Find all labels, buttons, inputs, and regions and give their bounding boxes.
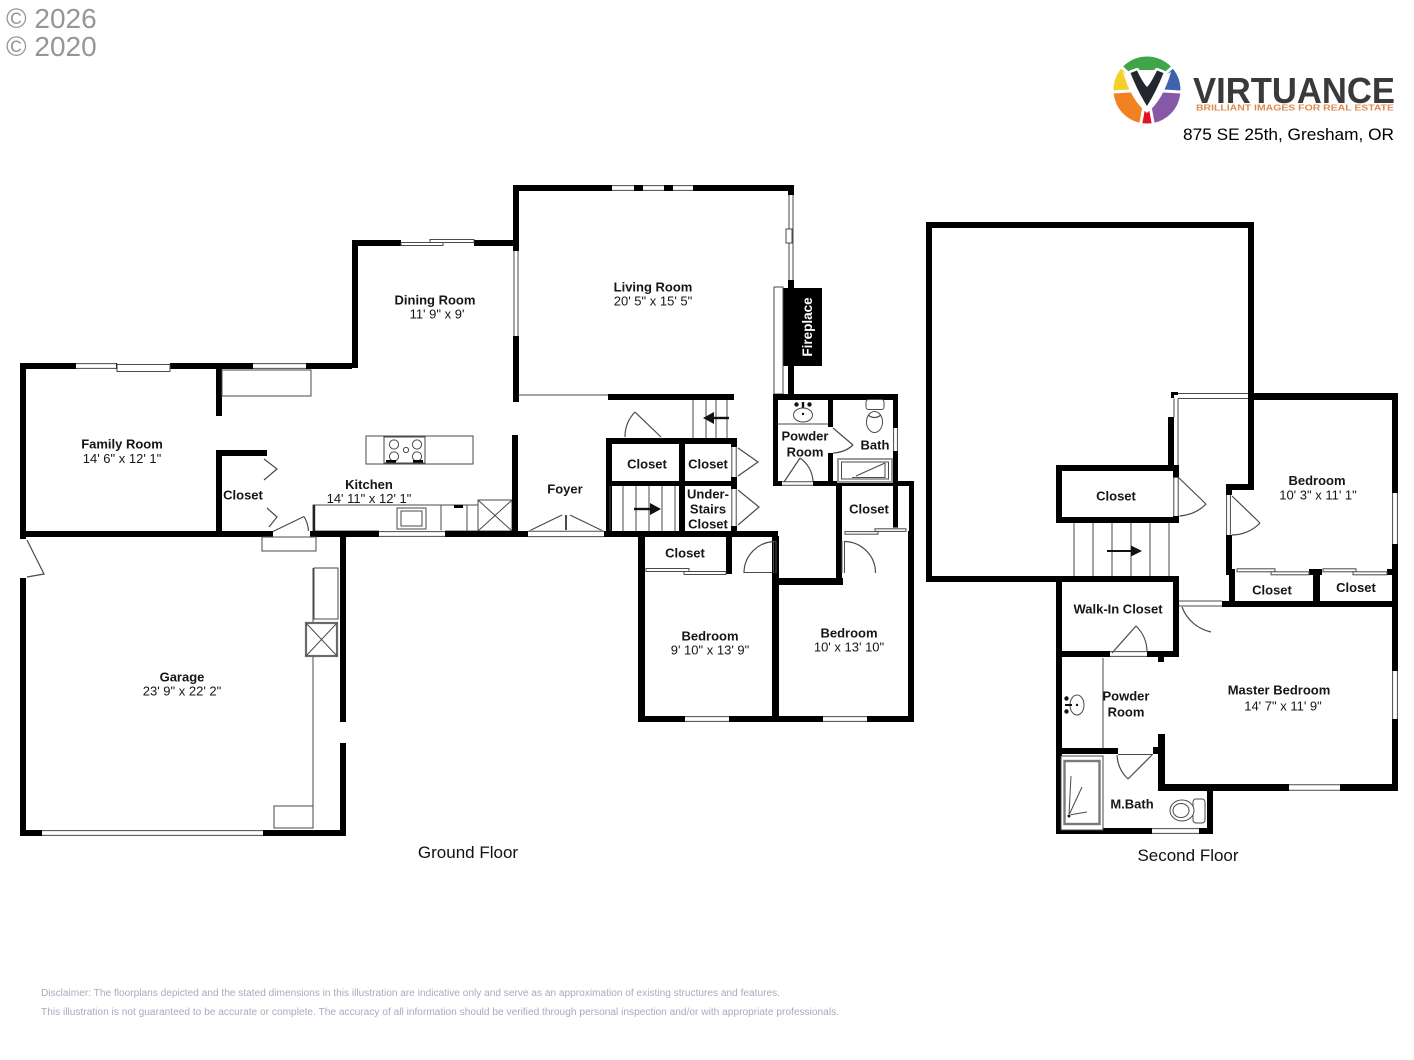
svg-text:9' 10" x 13' 9": 9' 10" x 13' 9" <box>671 643 750 658</box>
svg-text:Family Room: Family Room <box>81 437 163 452</box>
svg-text:Foyer: Foyer <box>547 482 582 497</box>
svg-text:Bedroom: Bedroom <box>820 626 877 641</box>
svg-text:14' 11" x 12' 1": 14' 11" x 12' 1" <box>327 491 412 506</box>
svg-text:Disclaimer: The floorplans dep: Disclaimer: The floorplans depicted and … <box>41 988 780 999</box>
svg-text:Living Room: Living Room <box>614 280 693 295</box>
svg-text:© 2020: © 2020 <box>6 31 97 62</box>
svg-text:Powder: Powder <box>1103 689 1150 704</box>
svg-text:14' 7" x 11' 9": 14' 7" x 11' 9" <box>1244 699 1322 714</box>
svg-text:Master Bedroom: Master Bedroom <box>1228 683 1331 698</box>
svg-text:Room: Room <box>1108 705 1145 720</box>
svg-text:23' 9" x 22' 2": 23' 9" x 22' 2" <box>143 684 222 699</box>
svg-text:10' x 13' 10": 10' x 13' 10" <box>814 640 885 655</box>
svg-text:Garage: Garage <box>160 670 205 685</box>
svg-text:Closet: Closet <box>688 517 728 532</box>
svg-text:Fireplace: Fireplace <box>800 297 815 357</box>
svg-text:Closet: Closet <box>688 457 728 472</box>
svg-text:Room: Room <box>787 445 824 460</box>
svg-text:Second Floor: Second Floor <box>1137 846 1238 865</box>
svg-text:© 2026: © 2026 <box>6 3 97 34</box>
svg-text:Walk-In Closet: Walk-In Closet <box>1073 602 1163 617</box>
svg-text:Closet: Closet <box>1096 489 1136 504</box>
svg-text:Powder: Powder <box>782 429 829 444</box>
svg-text:Closet: Closet <box>849 502 889 517</box>
svg-text:Closet: Closet <box>627 457 667 472</box>
svg-text:Closet: Closet <box>665 546 705 561</box>
svg-text:Stairs: Stairs <box>690 502 726 517</box>
svg-text:10' 3" x 11' 1": 10' 3" x 11' 1" <box>1279 488 1357 503</box>
svg-text:Closet: Closet <box>223 488 263 503</box>
svg-text:Under-: Under- <box>687 487 729 502</box>
svg-text:875 SE 25th, Gresham, OR: 875 SE 25th, Gresham, OR <box>1183 125 1394 144</box>
svg-text:Ground Floor: Ground Floor <box>418 843 518 862</box>
svg-text:Kitchen: Kitchen <box>345 477 393 492</box>
svg-text:Bedroom: Bedroom <box>1288 473 1345 488</box>
svg-text:20' 5" x 15' 5": 20' 5" x 15' 5" <box>614 294 693 309</box>
svg-text:Closet: Closet <box>1336 580 1376 595</box>
svg-text:Closet: Closet <box>1252 583 1292 598</box>
svg-text:Dining Room: Dining Room <box>395 293 476 308</box>
svg-text:11' 9" x 9': 11' 9" x 9' <box>410 307 465 322</box>
svg-text:Bedroom: Bedroom <box>681 629 738 644</box>
svg-text:BRILLIANT IMAGES FOR REAL ESTA: BRILLIANT IMAGES FOR REAL ESTATE <box>1196 104 1395 113</box>
svg-text:This illustration is not guara: This illustration is not guaranteed to b… <box>41 1007 839 1018</box>
svg-text:M.Bath: M.Bath <box>1110 797 1153 812</box>
svg-text:Bath: Bath <box>861 438 890 453</box>
svg-text:14' 6" x 12' 1": 14' 6" x 12' 1" <box>83 451 162 466</box>
